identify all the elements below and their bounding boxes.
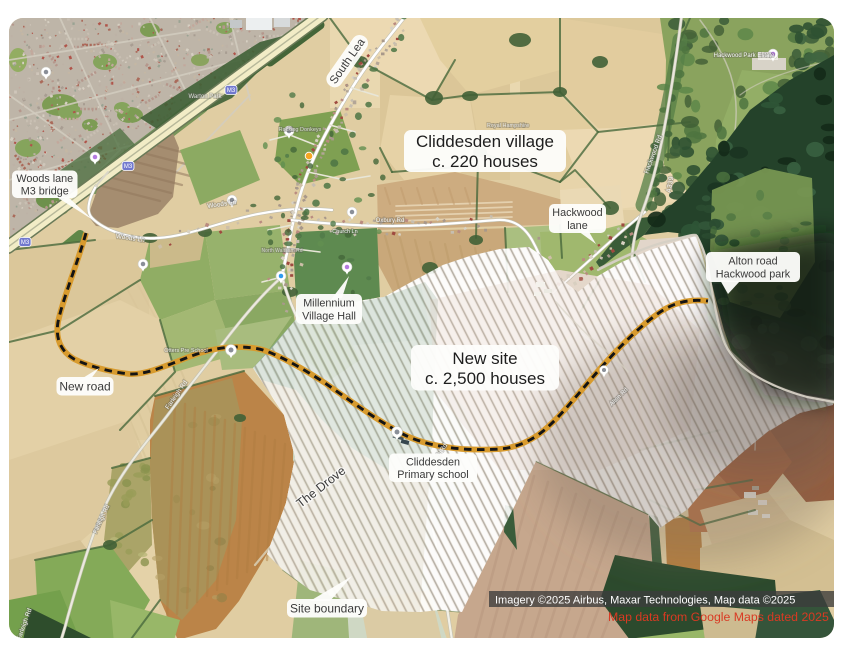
svg-text:Hackwood: Hackwood	[552, 207, 602, 219]
svg-text:Cliddesden: Cliddesden	[406, 456, 460, 468]
svg-text:Imagery ©2025 Airbus, Maxar Te: Imagery ©2025 Airbus, Maxar Technologies…	[495, 595, 795, 607]
svg-text:Oxbury Rd: Oxbury Rd	[376, 218, 405, 224]
svg-text:M3: M3	[21, 240, 30, 246]
svg-text:Alton road: Alton road	[728, 256, 777, 268]
svg-text:Woods lane: Woods lane	[16, 173, 73, 185]
svg-text:Church Ln: Church Ln	[332, 229, 357, 235]
svg-text:c. 2,500 houses: c. 2,500 houses	[425, 369, 545, 388]
svg-text:Primary school: Primary school	[397, 469, 468, 481]
svg-text:M3: M3	[124, 164, 133, 170]
svg-text:lane: lane	[567, 220, 587, 232]
svg-text:M3: M3	[227, 88, 236, 94]
svg-text:Hackwood Park Estate: Hackwood Park Estate	[714, 53, 775, 59]
svg-text:Royal Hampshire: Royal Hampshire	[487, 123, 529, 129]
svg-text:Warton Park: Warton Park	[188, 94, 222, 100]
svg-text:Village Hall: Village Hall	[302, 310, 356, 322]
svg-text:Cliddesden village: Cliddesden village	[416, 132, 554, 151]
svg-text:Site boundary: Site boundary	[290, 602, 364, 616]
svg-text:Map data from Google Maps date: Map data from Google Maps dated 2025	[608, 610, 829, 624]
svg-text:M3 bridge: M3 bridge	[21, 186, 69, 198]
svg-text:New site: New site	[452, 349, 517, 368]
svg-text:North Waltham Rd: North Waltham Rd	[262, 248, 303, 254]
svg-text:Otters Pre School: Otters Pre School	[164, 348, 207, 354]
svg-text:c. 220 houses: c. 220 houses	[432, 152, 538, 171]
svg-text:New road: New road	[59, 380, 110, 394]
svg-text:Rocking Donkeys: Rocking Donkeys	[279, 127, 322, 133]
svg-text:Millennium: Millennium	[303, 298, 355, 310]
svg-text:Hackwood park: Hackwood park	[716, 268, 791, 280]
